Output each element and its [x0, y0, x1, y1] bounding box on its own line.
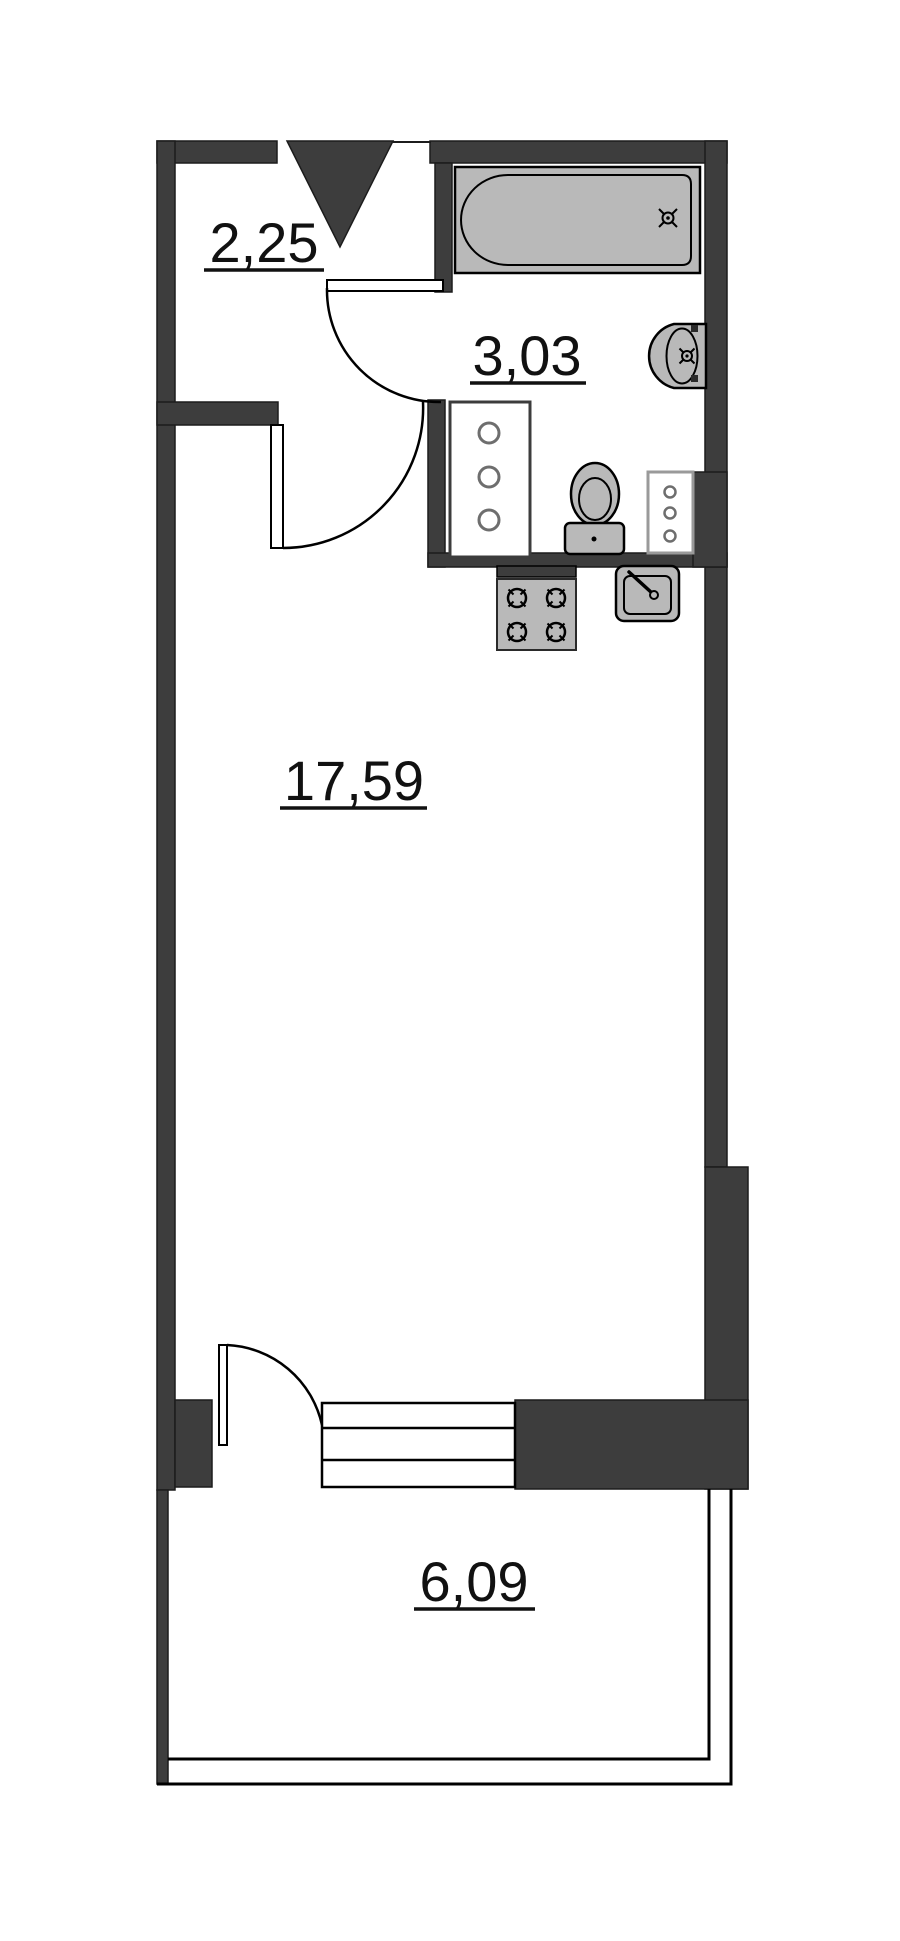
floor-plan: 2,25 3,03 17,59 6,09	[0, 0, 900, 1941]
basin-mount-icon	[691, 375, 698, 382]
wall-bottom-right	[515, 1400, 748, 1489]
wall-top-right	[430, 141, 727, 163]
door-bathroom	[327, 280, 443, 402]
wall-left	[157, 141, 175, 1490]
wall-hallway-bottom	[157, 402, 278, 425]
living-room-area-label: 17,59	[284, 749, 424, 812]
basin-mount-icon	[691, 325, 698, 332]
balcony-area-label: 6,09	[420, 1550, 529, 1613]
wall-bathroom-left-lower	[428, 400, 445, 567]
burner-icon	[547, 623, 565, 641]
balcony-railing	[157, 1489, 731, 1784]
tub-faucet-icon	[659, 209, 677, 227]
wall-right-upper	[705, 141, 727, 1167]
service-cabinet-icon	[648, 472, 693, 553]
stove-icon	[497, 566, 576, 650]
wall-bottom-left-block	[175, 1400, 212, 1487]
service-shaft	[693, 472, 727, 567]
bathtub-icon	[455, 167, 700, 273]
utility-cabinet-icon	[450, 402, 530, 557]
kitchen-sink-icon	[616, 566, 679, 621]
door-balcony	[219, 1345, 322, 1445]
door-leaf	[219, 1345, 227, 1445]
door-swing-icon	[227, 1345, 322, 1425]
basin-faucet-icon	[680, 349, 695, 364]
door-leaf	[271, 425, 283, 548]
steps-icon	[322, 1403, 515, 1487]
bathroom-area-label: 3,03	[473, 324, 582, 387]
toilet-icon	[565, 463, 624, 554]
walls	[157, 141, 748, 1784]
wall-left-balcony	[157, 1490, 168, 1784]
door-swing-icon	[283, 402, 423, 548]
door-swing-icon	[327, 288, 441, 402]
burner-icon	[508, 623, 526, 641]
floor-plan-canvas: 2,25 3,03 17,59 6,09	[0, 0, 900, 1941]
door-leaf	[327, 280, 443, 291]
wall-bathroom-left-upper	[435, 163, 452, 292]
hallway-area-label: 2,25	[210, 211, 319, 274]
burner-icon	[508, 589, 526, 607]
door-hallway	[271, 402, 423, 548]
wash-basin-icon	[649, 324, 706, 388]
burner-icon	[547, 589, 565, 607]
